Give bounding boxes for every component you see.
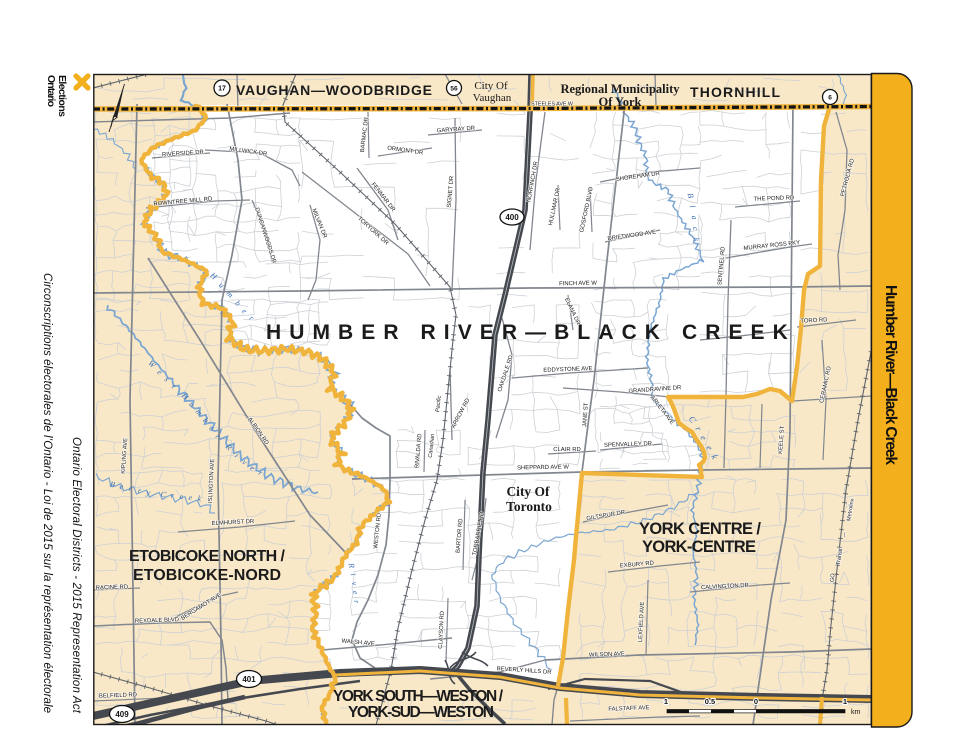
svg-text:YORK SOUTH—WESTON /: YORK SOUTH—WESTON /	[333, 688, 504, 705]
svg-text:1: 1	[843, 697, 847, 706]
svg-text:56: 56	[450, 85, 458, 92]
svg-text:HUMBER RIVER—BLACK CREEK: HUMBER RIVER—BLACK CREEK	[266, 321, 798, 344]
svg-text:17: 17	[218, 86, 226, 93]
svg-text:0.5: 0.5	[705, 697, 715, 706]
svg-text:STEELES AVE W: STEELES AVE W	[531, 102, 573, 108]
svg-text:WILSON AVE: WILSON AVE	[589, 651, 625, 658]
svg-text:RACINE RD: RACINE RD	[96, 584, 129, 591]
svg-text:Vaughan: Vaughan	[473, 92, 512, 104]
svg-text:SHEPPARD AVE W: SHEPPARD AVE W	[517, 465, 569, 472]
svg-text:VAUGHAN—WOODBRIDGE: VAUGHAN—WOODBRIDGE	[236, 82, 432, 98]
svg-text:6: 6	[828, 94, 832, 101]
svg-text:Ontario Electoral Districts -: Ontario Electoral Districts - 2015 Repre…	[70, 437, 82, 714]
svg-text:Of York: Of York	[599, 95, 642, 109]
svg-text:Toronto: Toronto	[506, 499, 552, 514]
svg-text:Ontario: Ontario	[45, 75, 57, 107]
svg-text:0: 0	[754, 697, 758, 706]
svg-text:km: km	[851, 709, 861, 716]
svg-text:400: 400	[505, 213, 519, 222]
svg-text:401: 401	[242, 675, 256, 684]
svg-text:YORK-CENTRE: YORK-CENTRE	[642, 538, 756, 556]
svg-text:YORK-SUD—WESTON: YORK-SUD—WESTON	[348, 704, 494, 721]
svg-text:Circonscriptions électorales d: Circonscriptions électorales de l’Ontari…	[41, 273, 53, 713]
svg-text:Regional Municipality: Regional Municipality	[560, 82, 680, 96]
svg-text:1: 1	[664, 697, 668, 706]
svg-text:City Of: City Of	[506, 484, 550, 499]
svg-text:Humber River—Black Creek: Humber River—Black Creek	[882, 285, 899, 465]
svg-text:ETOBICOKE-NORD: ETOBICOKE-NORD	[133, 567, 281, 584]
svg-text:409: 409	[115, 710, 129, 719]
svg-text:ETOBICOKE NORTH /: ETOBICOKE NORTH /	[129, 548, 286, 565]
svg-text:City Of: City Of	[474, 80, 508, 92]
svg-text:CLAIR RD: CLAIR RD	[553, 447, 581, 453]
svg-text:YORK CENTRE /: YORK CENTRE /	[639, 520, 761, 538]
svg-text:FINCH AVE W: FINCH AVE W	[559, 281, 597, 288]
svg-text:THORNHILL: THORNHILL	[690, 84, 780, 100]
